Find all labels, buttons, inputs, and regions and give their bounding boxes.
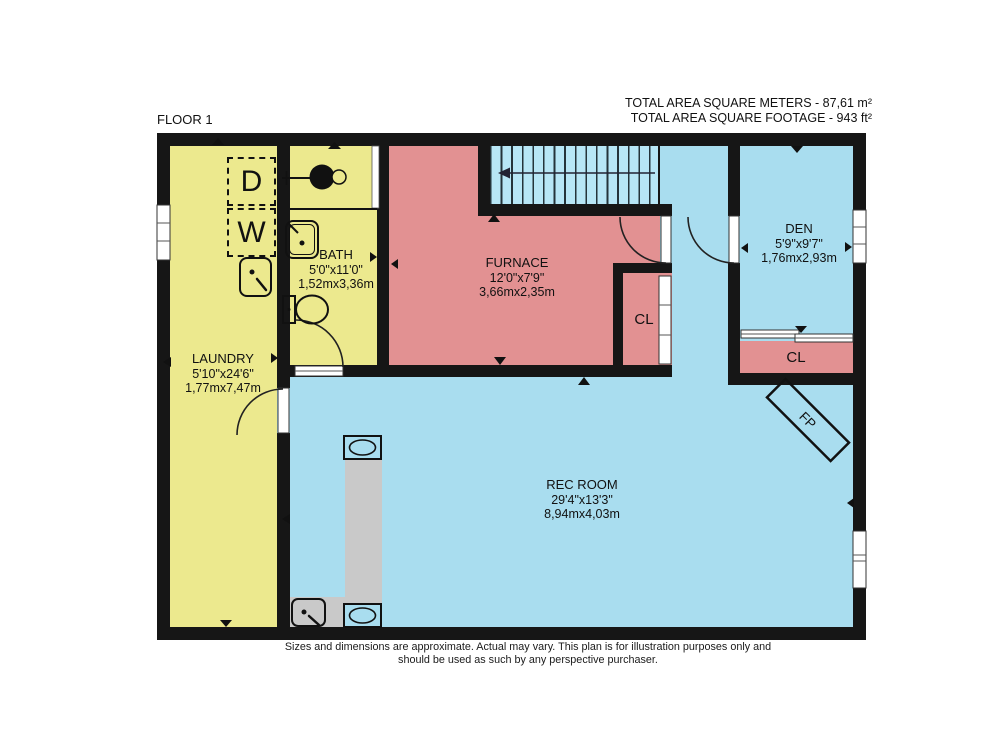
room-size-ft: 12'0"x7'9" xyxy=(479,271,555,286)
closet-den-label: CL xyxy=(786,349,805,366)
laundry-label: LAUNDRY 5'10"x24'6" 1,77mx7,47m xyxy=(185,352,261,396)
room-name: DEN xyxy=(761,222,837,237)
marker-triangle xyxy=(847,498,854,508)
room-name: FURNACE xyxy=(479,256,555,271)
closet-hall-label: CL xyxy=(634,311,653,328)
room-size-ft: 29'4"x13'3" xyxy=(544,493,620,508)
marker-triangle xyxy=(791,146,803,153)
rec-table-top-icon xyxy=(344,436,381,459)
marker-triangle xyxy=(494,357,506,365)
den-sliding-door xyxy=(741,330,853,342)
washer-label: W xyxy=(237,216,265,250)
den-door xyxy=(688,216,739,263)
room-size-m: 1,76mx2,93m xyxy=(761,251,837,266)
dryer-label: D xyxy=(241,165,263,199)
window-den-right xyxy=(853,210,866,263)
rec-sink-icon xyxy=(292,599,325,626)
plan-overlay: FP xyxy=(0,0,1000,741)
laundry-sink-icon xyxy=(240,258,271,296)
marker-triangle xyxy=(163,357,171,367)
washer-box: W xyxy=(227,208,276,257)
marker-triangle xyxy=(271,353,278,363)
rec-table-bottom-icon xyxy=(344,604,381,627)
dryer-box: D xyxy=(227,157,276,206)
marker-triangle xyxy=(391,259,398,269)
room-name: REC ROOM xyxy=(544,478,620,493)
room-name: LAUNDRY xyxy=(185,352,261,367)
room-size-ft: 5'9"x9'7" xyxy=(761,237,837,252)
marker-triangle xyxy=(578,377,590,385)
marker-triangle xyxy=(845,242,852,252)
room-size-m: 1,77mx7,47m xyxy=(185,381,261,396)
fireplace-icon: FP xyxy=(767,379,849,461)
toilet-icon xyxy=(283,296,328,324)
room-size-m: 3,66mx2,35m xyxy=(479,285,555,300)
disclaimer-line-1: Sizes and dimensions are approximate. Ac… xyxy=(285,641,771,654)
room-size-ft: 5'10"x24'6" xyxy=(185,367,261,382)
bathtub-icon xyxy=(282,146,379,209)
furnace-label: FURNACE 12'0"x7'9" 3,66mx2,35m xyxy=(479,256,555,300)
room-size-m: 8,94mx4,03m xyxy=(544,507,620,522)
bath-door xyxy=(295,320,343,376)
disclaimer: Sizes and dimensions are approximate. Ac… xyxy=(285,641,771,666)
room-size-ft: 5'0"x11'0" xyxy=(298,263,374,278)
floor-plan: FLOOR 1 TOTAL AREA SQUARE METERS - 87,61… xyxy=(0,0,1000,741)
closet-hall-sliding-door xyxy=(659,276,671,364)
marker-triangle xyxy=(282,514,290,524)
room-size-m: 1,52mx3,36m xyxy=(298,277,374,292)
marker-triangle xyxy=(488,214,500,222)
rec-room-label: REC ROOM 29'4"x13'3" 8,94mx4,03m xyxy=(544,478,620,522)
marker-triangle xyxy=(212,138,224,145)
window-left-wall xyxy=(157,205,170,260)
marker-triangle xyxy=(220,620,232,627)
marker-triangle xyxy=(741,243,748,253)
disclaimer-line-2: should be used as such by any perspectiv… xyxy=(285,654,771,667)
den-label: DEN 5'9"x9'7" 1,76mx2,93m xyxy=(761,222,837,266)
furnace-door xyxy=(620,216,671,263)
marker-triangle xyxy=(328,142,341,149)
window-rec-right xyxy=(853,531,866,588)
stairs-direction-arrow xyxy=(498,168,655,179)
bath-label: BATH 5'0"x11'0" 1,52mx3,36m xyxy=(298,248,374,292)
room-name: BATH xyxy=(298,248,374,263)
